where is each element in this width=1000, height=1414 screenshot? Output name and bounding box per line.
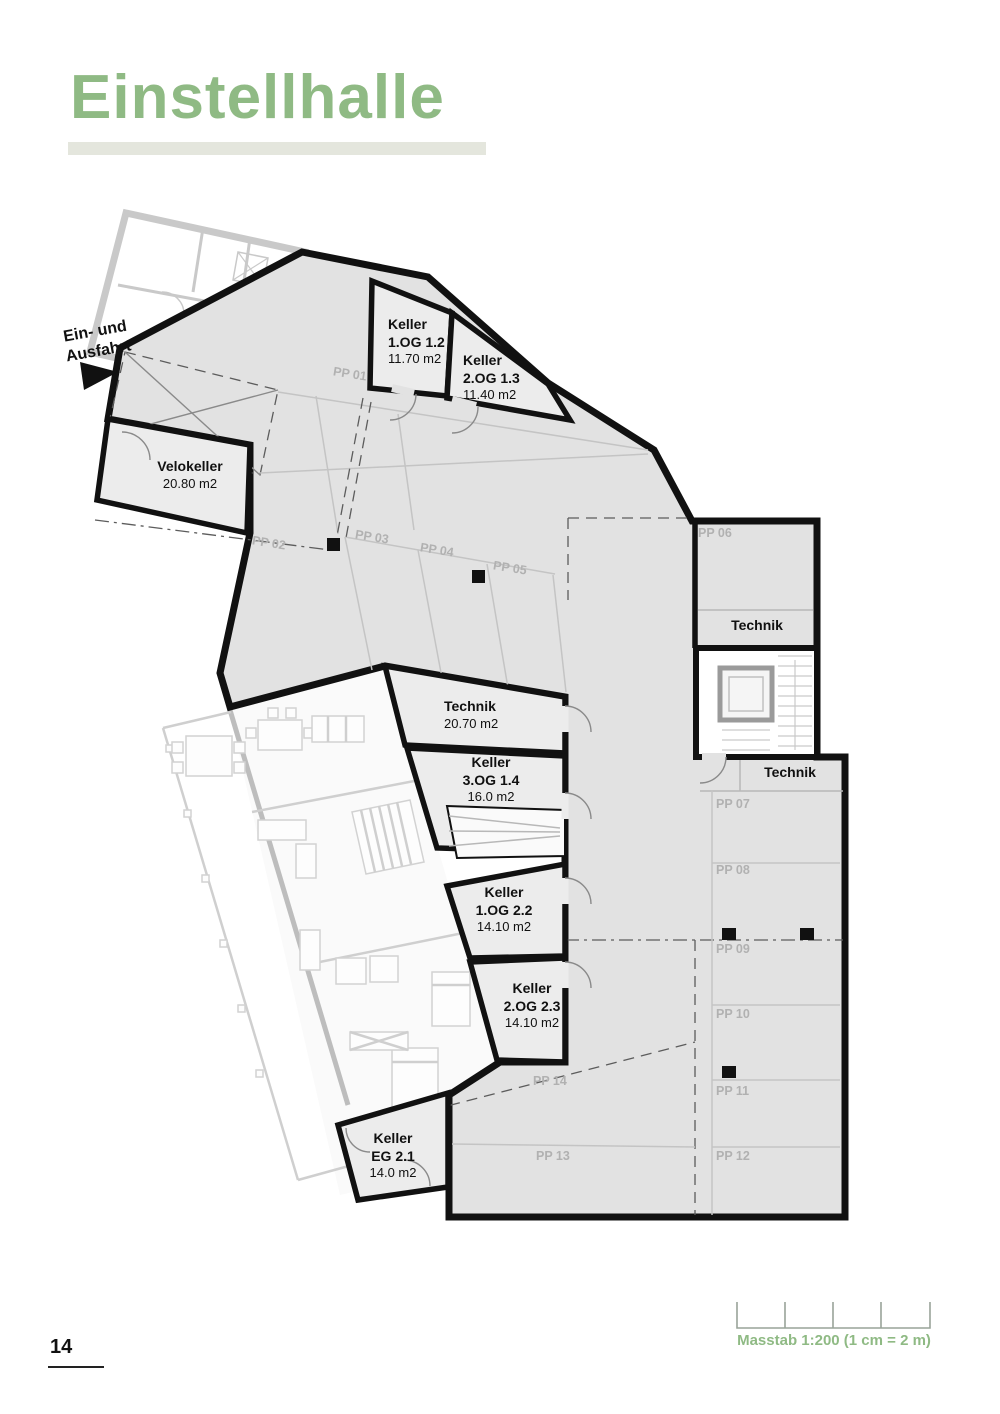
elevator xyxy=(720,668,772,720)
floor-plan xyxy=(0,0,1000,1414)
room-label-technik-mid: Technik 20.70 m2 xyxy=(444,698,498,732)
plan-page: { "page": { "title": "Einstellhalle", "p… xyxy=(0,0,1000,1414)
parking-label-pp10: PP 10 xyxy=(716,1007,750,1021)
parking-label-pp12: PP 12 xyxy=(716,1149,750,1163)
parking-label-pp08: PP 08 xyxy=(716,863,750,877)
room-label-keller-1og-22: Keller 1.OG 2.2 14.10 m2 xyxy=(476,884,533,935)
room-label-technik-ne: Technik xyxy=(731,617,783,635)
room-label-keller-1og-12: Keller 1.OG 1.2 11.70 m2 xyxy=(388,316,445,367)
room-label-velokeller: Velokeller 20.80 m2 xyxy=(157,458,222,492)
stairwell xyxy=(696,648,817,757)
parking-label-pp11: PP 11 xyxy=(716,1084,749,1098)
room-label-keller-3og-14: Keller 3.OG 1.4 16.0 m2 xyxy=(463,754,520,805)
page-number: 14 xyxy=(50,1336,72,1359)
parking-label-pp06: PP 06 xyxy=(698,526,732,540)
parking-label-pp14: PP 14 xyxy=(533,1074,567,1088)
room-label-keller-2og-13: Keller 2.OG 1.3 11.40 m2 xyxy=(463,352,520,403)
parking-label-pp07: PP 07 xyxy=(716,797,750,811)
parking-label-pp13: PP 13 xyxy=(536,1149,570,1163)
room-label-keller-2og-23: Keller 2.OG 2.3 14.10 m2 xyxy=(504,980,561,1031)
room-label-technik-e: Technik xyxy=(764,764,816,782)
room-label-keller-eg-21: Keller EG 2.1 14.0 m2 xyxy=(370,1130,417,1181)
parking-label-pp09: PP 09 xyxy=(716,942,750,956)
scale-caption: Masstab 1:200 (1 cm = 2 m) xyxy=(698,1332,970,1349)
scale-bar xyxy=(737,1302,930,1328)
page-number-underline xyxy=(48,1366,104,1368)
